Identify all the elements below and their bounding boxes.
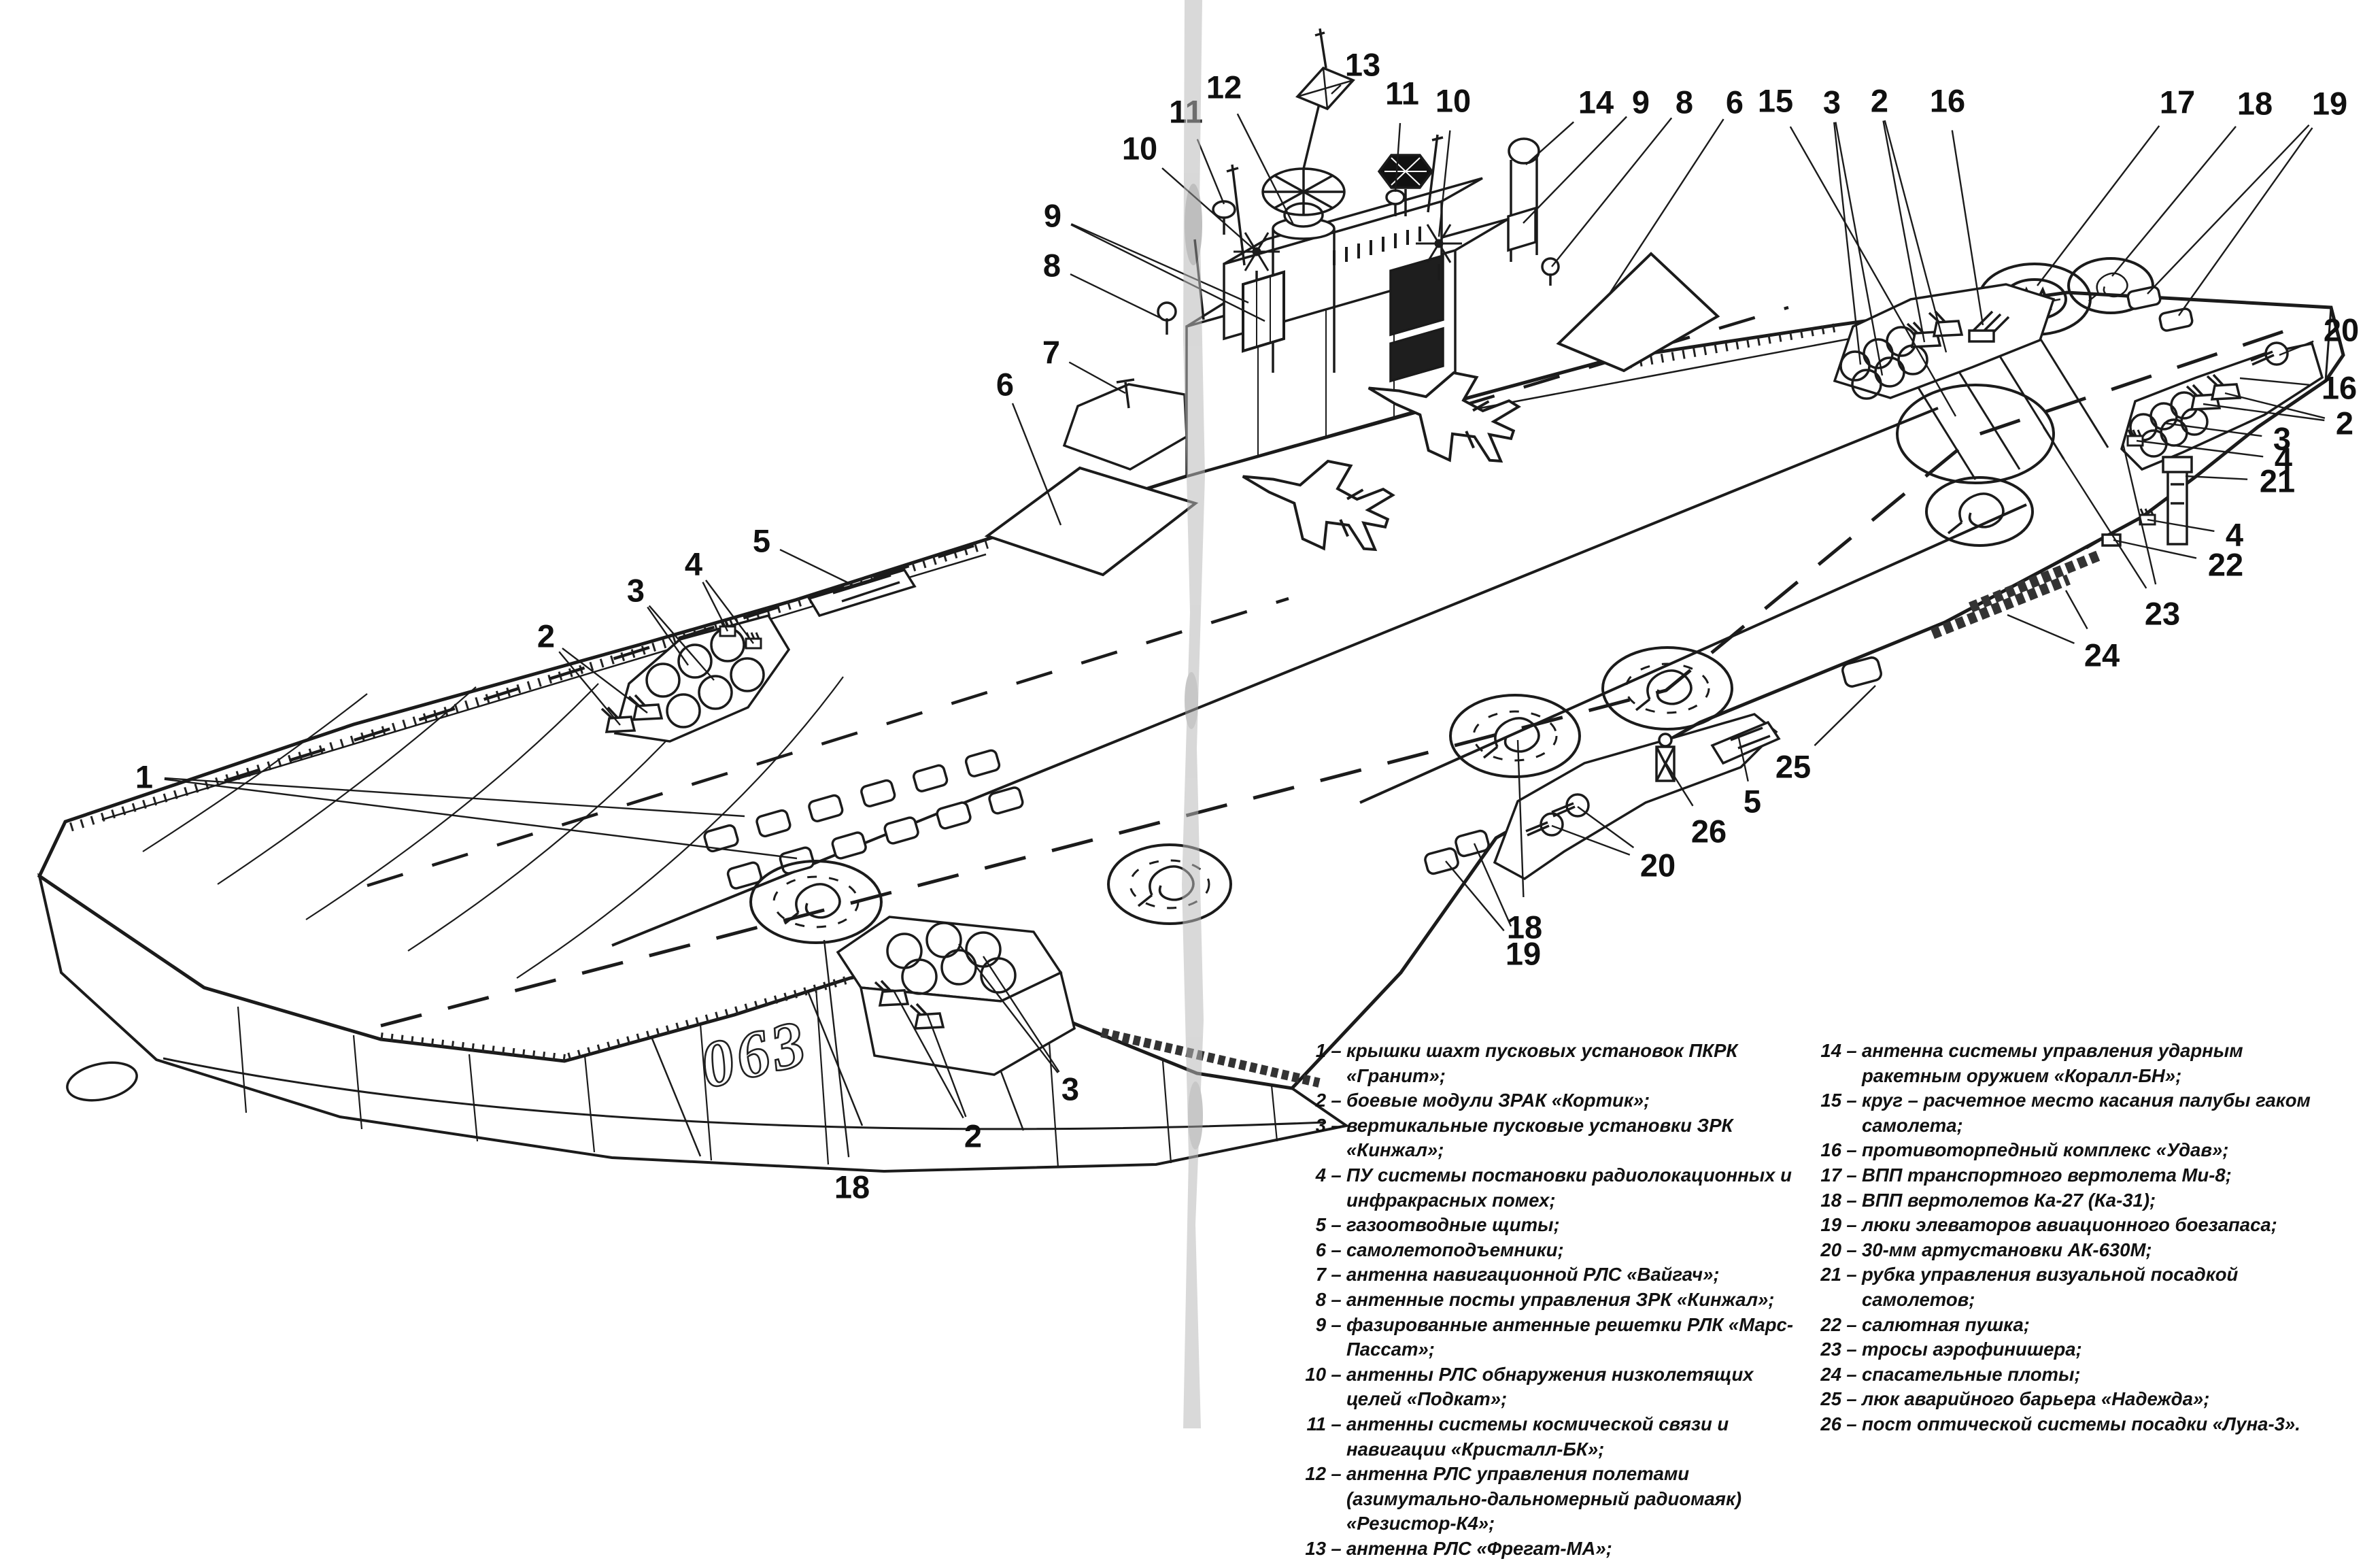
callout-number-8: 8 bbox=[1676, 84, 1693, 120]
callout-number-19: 19 bbox=[2312, 86, 2347, 122]
legend-item-23: 23–тросы аэрофинишера; bbox=[1806, 1337, 2330, 1362]
leader-line bbox=[1523, 117, 1627, 224]
legend-item-text: ВПП транспортного вертолета Ми-8; bbox=[1862, 1163, 2315, 1188]
legend-separator: – bbox=[1841, 1213, 1862, 1238]
leader-line bbox=[1552, 118, 1671, 267]
callout-number-15: 15 bbox=[1758, 83, 1793, 119]
legend-item-text: фазированные антенные решетки РЛК «Марс-… bbox=[1346, 1313, 1799, 1362]
legend-item-text: крышки шахт пусковых установок ПКРК «Гра… bbox=[1346, 1039, 1799, 1088]
legend-separator: – bbox=[1326, 1163, 1346, 1188]
leader-line bbox=[1070, 274, 1164, 320]
legend-item-text: самолетоподъемники; bbox=[1346, 1238, 1799, 1263]
legend-item-number: 1 bbox=[1291, 1039, 1326, 1064]
book-page: 063 bbox=[0, 0, 2380, 1428]
legend-item-number: 18 bbox=[1806, 1188, 1841, 1213]
legend-item-6: 6–самолетоподъемники; bbox=[1291, 1238, 1799, 1263]
legend-separator: – bbox=[1841, 1188, 1862, 1213]
legend-item-text: рубка управления визуальной посадкой сам… bbox=[1862, 1262, 2315, 1312]
legend-item-number: 3 bbox=[1291, 1113, 1326, 1139]
callout-number-5: 5 bbox=[753, 523, 770, 559]
legend-item-text: газоотводные щиты; bbox=[1346, 1213, 1799, 1238]
callout-number-19: 19 bbox=[1506, 936, 1541, 972]
legend-item-number: 20 bbox=[1806, 1238, 1841, 1263]
callout-number-18: 18 bbox=[834, 1169, 870, 1205]
leader-line bbox=[780, 550, 855, 586]
leader-line bbox=[1610, 119, 1724, 292]
legend-separator: – bbox=[1841, 1262, 1862, 1288]
callout-number-23: 23 bbox=[2145, 596, 2180, 632]
callout-number-11: 11 bbox=[1385, 75, 1419, 112]
callout-number-4: 4 bbox=[685, 546, 702, 582]
legend-item-text: антенна системы управления ударным ракет… bbox=[1862, 1039, 2315, 1088]
legend-separator: – bbox=[1841, 1238, 1862, 1263]
legend-separator: – bbox=[1841, 1412, 1862, 1437]
legend-item-number: 15 bbox=[1806, 1088, 1841, 1113]
callout-number-24: 24 bbox=[2084, 637, 2120, 673]
legend-item-text: тросы аэрофинишера; bbox=[1862, 1337, 2315, 1362]
leader-line bbox=[2112, 127, 2236, 276]
legend-item-text: боевые модули ЗРАК «Кортик»; bbox=[1346, 1088, 1799, 1113]
legend-separator: – bbox=[1841, 1313, 1862, 1338]
callout-number-14: 14 bbox=[1578, 84, 1614, 120]
legend-separator: – bbox=[1326, 1088, 1346, 1113]
legend-item-2: 2–боевые модули ЗРАК «Кортик»; bbox=[1291, 1088, 1799, 1113]
callout-number-2: 2 bbox=[2336, 405, 2353, 441]
legend-item-21: 21–рубка управления визуальной посадкой … bbox=[1806, 1262, 2330, 1312]
legend-item-number: 11 bbox=[1291, 1412, 1326, 1437]
callout-number-7: 7 bbox=[1042, 335, 1060, 371]
legend-item-number: 14 bbox=[1806, 1039, 1841, 1064]
legend-item-26: 26–пост оптической системы посадки «Луна… bbox=[1806, 1412, 2330, 1437]
legend-item-15: 15–круг – расчетное место касания палубы… bbox=[1806, 1088, 2330, 1138]
callout-number-17: 17 bbox=[2160, 84, 2195, 120]
legend-item-text: круг – расчетное место касания палубы га… bbox=[1862, 1088, 2315, 1138]
callout-number-5: 5 bbox=[1744, 784, 1761, 820]
legend-item-20: 20–30-мм артустановки АК-630М; bbox=[1806, 1238, 2330, 1263]
legend-separator: – bbox=[1326, 1313, 1346, 1338]
legend-item-text: люк аварийного барьера «Надежда»; bbox=[1862, 1387, 2315, 1412]
legend-item-text: антенные посты управления ЗРК «Кинжал»; bbox=[1346, 1288, 1799, 1313]
callout-number-16: 16 bbox=[1930, 83, 1965, 119]
legend-separator: – bbox=[1326, 1213, 1346, 1238]
legend-item-13: 13–антенна РЛС «Фрегат-МА»; bbox=[1291, 1537, 1799, 1561]
legend-column-right: 14–антенна системы управления ударным ра… bbox=[1806, 1039, 2330, 1437]
callout-number-2: 2 bbox=[964, 1118, 982, 1154]
legend-item-number: 2 bbox=[1291, 1088, 1326, 1113]
legend-item-text: ПУ системы постановки радиолокационных и… bbox=[1346, 1163, 1799, 1213]
legend-separator: – bbox=[1326, 1039, 1346, 1064]
legend-item-number: 8 bbox=[1291, 1288, 1326, 1313]
legend-item-number: 19 bbox=[1806, 1213, 1841, 1238]
legend-item-9: 9–фазированные антенные решетки РЛК «Мар… bbox=[1291, 1313, 1799, 1362]
leader-line bbox=[1071, 224, 1248, 303]
callout-number-25: 25 bbox=[1775, 749, 1811, 785]
callout-number-26: 26 bbox=[1691, 813, 1727, 850]
legend-separator: – bbox=[1841, 1362, 1862, 1388]
callout-number-9: 9 bbox=[1632, 84, 1650, 120]
funnel-grille bbox=[1391, 256, 1443, 335]
legend-item-17: 17–ВПП транспортного вертолета Ми-8; bbox=[1806, 1163, 2330, 1188]
callout-number-8: 8 bbox=[1043, 248, 1061, 284]
legend-item-text: люки элеваторов авиационного боезапаса; bbox=[1862, 1213, 2315, 1238]
leader-line bbox=[2066, 590, 2088, 629]
legend-item-10: 10–антенны РЛС обнаружения низколетящих … bbox=[1291, 1362, 1799, 1412]
callout-number-10: 10 bbox=[1435, 83, 1471, 119]
legend-separator: – bbox=[1326, 1113, 1346, 1139]
legend-item-text: антенны РЛС обнаружения низколетящих цел… bbox=[1346, 1362, 1799, 1412]
callout-number-3: 3 bbox=[1061, 1071, 1079, 1107]
callout-number-12: 12 bbox=[1206, 69, 1242, 105]
legend-item-number: 4 bbox=[1291, 1163, 1326, 1188]
legend-item-number: 16 bbox=[1806, 1138, 1841, 1163]
leader-line bbox=[1162, 168, 1257, 252]
legend-item-number: 22 bbox=[1806, 1313, 1841, 1338]
legend-item-25: 25–люк аварийного барьера «Надежда»; bbox=[1806, 1387, 2330, 1412]
leader-line bbox=[2179, 128, 2313, 316]
legend-item-8: 8–антенные посты управления ЗРК «Кинжал»… bbox=[1291, 1288, 1799, 1313]
callout-number-2: 2 bbox=[1871, 83, 1888, 119]
luna3-optical-post bbox=[1656, 734, 1674, 781]
callout-number-20: 20 bbox=[1640, 847, 1676, 884]
leader-line bbox=[1069, 363, 1125, 394]
legend-separator: – bbox=[1326, 1412, 1346, 1437]
landing-control-cabin bbox=[2163, 457, 2192, 544]
legend-item-text: антенна РЛС «Фрегат-МА»; bbox=[1346, 1537, 1799, 1561]
bridge-wing-platform bbox=[1064, 384, 1187, 469]
legend-separator: – bbox=[1841, 1337, 1862, 1362]
legend-item-number: 25 bbox=[1806, 1387, 1841, 1412]
callout-number-21: 21 bbox=[2260, 463, 2295, 499]
legend-item-number: 23 bbox=[1806, 1337, 1841, 1362]
legend-item-number: 26 bbox=[1806, 1412, 1841, 1437]
callout-number-10: 10 bbox=[1122, 131, 1157, 167]
legend-item-number: 7 bbox=[1291, 1262, 1326, 1288]
legend-item-number: 17 bbox=[1806, 1163, 1841, 1188]
legend-separator: – bbox=[1841, 1138, 1862, 1163]
legend-separator: – bbox=[1841, 1039, 1862, 1064]
legend-separator: – bbox=[1841, 1163, 1862, 1188]
legend-item-text: противоторпедный комплекс «Удав»; bbox=[1862, 1138, 2315, 1163]
legend-item-4: 4–ПУ системы постановки радиолокационных… bbox=[1291, 1163, 1799, 1213]
legend-item-22: 22–салютная пушка; bbox=[1806, 1313, 2330, 1338]
leader-line bbox=[1197, 139, 1224, 204]
legend-item-number: 21 bbox=[1806, 1262, 1841, 1288]
legend-separator: – bbox=[1326, 1462, 1346, 1487]
leader-line bbox=[2007, 615, 2075, 643]
legend-separator: – bbox=[1326, 1362, 1346, 1388]
legend-item-number: 24 bbox=[1806, 1362, 1841, 1388]
legend-item-5: 5–газоотводные щиты; bbox=[1291, 1213, 1799, 1238]
legend-item-7: 7–антенна навигационной РЛС «Вайгач»; bbox=[1291, 1262, 1799, 1288]
legend-item-24: 24–спасательные плоты; bbox=[1806, 1362, 2330, 1388]
legend-separator: – bbox=[1326, 1238, 1346, 1263]
legend-item-text: антенны системы космической связи и нави… bbox=[1346, 1412, 1799, 1462]
legend-item-16: 16–противоторпедный комплекс «Удав»; bbox=[1806, 1138, 2330, 1163]
legend-item-number: 10 bbox=[1291, 1362, 1326, 1388]
legend-item-number: 9 bbox=[1291, 1313, 1326, 1338]
legend-separator: – bbox=[1841, 1088, 1862, 1113]
legend-separator: – bbox=[1326, 1262, 1346, 1288]
callout-number-16: 16 bbox=[2322, 370, 2357, 406]
legend-item-text: салютная пушка; bbox=[1862, 1313, 2315, 1338]
legend-item-number: 13 bbox=[1291, 1537, 1326, 1561]
leader-line bbox=[1814, 686, 1875, 745]
korall-bn-radome bbox=[1509, 139, 1539, 163]
callout-number-20: 20 bbox=[2324, 312, 2359, 348]
callout-number-13: 13 bbox=[1345, 47, 1380, 83]
callout-number-22: 22 bbox=[2208, 547, 2243, 583]
legend-item-text: ВПП вертолетов Ка-27 (Ка-31); bbox=[1862, 1188, 2315, 1213]
leader-line bbox=[1238, 114, 1293, 224]
legend-item-11: 11–антенны системы космической связи и н… bbox=[1291, 1412, 1799, 1462]
legend-item-text: антенна навигационной РЛС «Вайгач»; bbox=[1346, 1262, 1799, 1288]
callout-number-9: 9 bbox=[1044, 198, 1061, 234]
legend-item-number: 5 bbox=[1291, 1213, 1326, 1238]
legend-item-19: 19–люки элеваторов авиационного боезапас… bbox=[1806, 1213, 2330, 1238]
callout-number-6: 6 bbox=[1726, 84, 1744, 120]
legend-item-text: спасательные плоты; bbox=[1862, 1362, 2315, 1388]
callout-number-1: 1 bbox=[135, 759, 153, 795]
callout-number-18: 18 bbox=[2237, 86, 2273, 122]
leader-line bbox=[2147, 125, 2309, 294]
kristall-bk-dome bbox=[1387, 190, 1404, 204]
callout-number-3: 3 bbox=[1823, 84, 1841, 120]
legend-item-12: 12–антенна РЛС управления полетами (азим… bbox=[1291, 1462, 1799, 1537]
legend-item-3: 3–вертикальные пусковые установки ЗРК «К… bbox=[1291, 1113, 1799, 1163]
legend-item-text: вертикальные пусковые установки ЗРК «Кин… bbox=[1346, 1113, 1799, 1163]
leader-line bbox=[2037, 126, 2159, 286]
legend-item-18: 18–ВПП вертолетов Ка-27 (Ка-31); bbox=[1806, 1188, 2330, 1213]
legend-separator: – bbox=[1326, 1288, 1346, 1313]
legend-item-text: пост оптической системы посадки «Луна-3»… bbox=[1862, 1412, 2315, 1437]
legend-item-text: 30-мм артустановки АК-630М; bbox=[1862, 1238, 2315, 1263]
callout-number-2: 2 bbox=[537, 618, 555, 654]
legend-separator: – bbox=[1326, 1537, 1346, 1561]
leader-line bbox=[1439, 131, 1450, 237]
legend-item-14: 14–антенна системы управления ударным ра… bbox=[1806, 1039, 2330, 1088]
bulbous-bow bbox=[64, 1057, 141, 1106]
legend-separator: – bbox=[1841, 1387, 1862, 1412]
antenna-spoke-wheel bbox=[1263, 169, 1344, 215]
legend-item-number: 6 bbox=[1291, 1238, 1326, 1263]
mars-passat-array bbox=[1243, 272, 1284, 351]
callout-number-6: 6 bbox=[996, 367, 1014, 403]
legend-item-1: 1–крышки шахт пусковых установок ПКРК «Г… bbox=[1291, 1039, 1799, 1088]
legend-item-text: антенна РЛС управления полетами (азимута… bbox=[1346, 1462, 1799, 1537]
legend-column-left: 1–крышки шахт пусковых установок ПКРК «Г… bbox=[1291, 1039, 1799, 1561]
callout-number-3: 3 bbox=[627, 573, 645, 609]
legend-item-number: 12 bbox=[1291, 1462, 1326, 1487]
